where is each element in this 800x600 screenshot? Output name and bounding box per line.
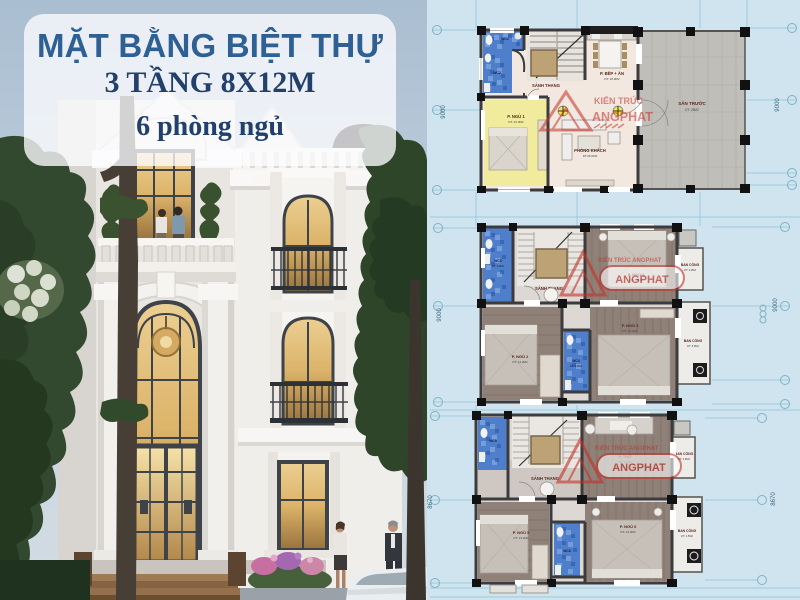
svg-text:PHÒNG KHÁCH: PHÒNG KHÁCH	[574, 148, 606, 153]
svg-text:DT: 4.5M2: DT: 4.5M2	[681, 534, 693, 538]
svg-text:ANGPHAT: ANGPHAT	[615, 274, 669, 286]
svg-text:BAN CÔNG: BAN CÔNG	[675, 451, 694, 456]
svg-text:BAN CÔNG: BAN CÔNG	[678, 528, 697, 533]
svg-text:WC4: WC4	[572, 359, 580, 363]
svg-text:BAN CÔNG: BAN CÔNG	[681, 262, 700, 267]
svg-text:SÂN TRƯỚC: SÂN TRƯỚC	[678, 99, 706, 106]
svg-text:9000: 9000	[775, 98, 781, 112]
svg-text:BAN CÔNG: BAN CÔNG	[684, 338, 703, 343]
svg-text:SẢNH THANG: SẢNH THANG	[532, 83, 560, 88]
svg-text:WC3: WC3	[494, 259, 502, 263]
svg-text:P. NGỦ 3: P. NGỦ 3	[622, 323, 639, 328]
svg-text:9000: 9000	[773, 298, 779, 312]
svg-text:DT: 4.0M2: DT: 4.0M2	[570, 364, 582, 368]
svg-text:WC1: WC1	[501, 37, 509, 41]
svg-text:DT: 18.0M2: DT: 18.0M2	[604, 77, 620, 81]
svg-text:KIẾN TRÚC ANGPHAT: KIẾN TRÚC ANGPHAT	[598, 257, 662, 264]
svg-text:KIẾN TRÚC: KIẾN TRÚC	[594, 95, 643, 106]
svg-text:DT: 14.4M2: DT: 14.4M2	[622, 329, 638, 333]
svg-text:DT: 25M2: DT: 25M2	[685, 108, 699, 112]
svg-text:DT: 16.0M2: DT: 16.0M2	[508, 120, 524, 124]
svg-text:ANGPHAT: ANGPHAT	[592, 110, 653, 124]
svg-text:P. NGỦ 1: P. NGỦ 1	[507, 114, 525, 119]
svg-text:P. BẾP + ĂN: P. BẾP + ĂN	[600, 71, 624, 76]
svg-text:9000: 9000	[441, 105, 447, 119]
svg-text:WC5: WC5	[489, 439, 497, 443]
svg-text:WC2: WC2	[493, 71, 501, 75]
svg-text:8670: 8670	[771, 492, 777, 506]
svg-text:P. NGỦ 2: P. NGỦ 2	[512, 354, 529, 359]
svg-text:WC6: WC6	[563, 549, 571, 553]
svg-text:SẢNH THANG: SẢNH THANG	[531, 476, 559, 481]
svg-text:DT: 4.0M2: DT: 4.0M2	[684, 268, 696, 272]
svg-text:DT:25.0M2: DT:25.0M2	[583, 154, 598, 158]
svg-text:P. NGỦ 5: P. NGỦ 5	[513, 530, 530, 535]
svg-text:DT: 5.0M2: DT: 5.0M2	[492, 264, 504, 268]
svg-text:DT: 14.2M2: DT: 14.2M2	[512, 360, 528, 364]
svg-text:8670: 8670	[428, 495, 434, 509]
svg-text:ANGPHAT: ANGPHAT	[612, 462, 666, 474]
svg-text:P. NGỦ 6: P. NGỦ 6	[620, 524, 637, 529]
svg-text:KIẾN TRÚC ANGPHAT: KIẾN TRÚC ANGPHAT	[595, 445, 659, 452]
svg-text:9000: 9000	[437, 308, 443, 322]
svg-text:DT: 5.0M2: DT: 5.0M2	[687, 344, 699, 348]
svg-text:DT: 14.4M2: DT: 14.4M2	[620, 530, 636, 534]
svg-text:DT: 13.2M2: DT: 13.2M2	[513, 536, 529, 540]
